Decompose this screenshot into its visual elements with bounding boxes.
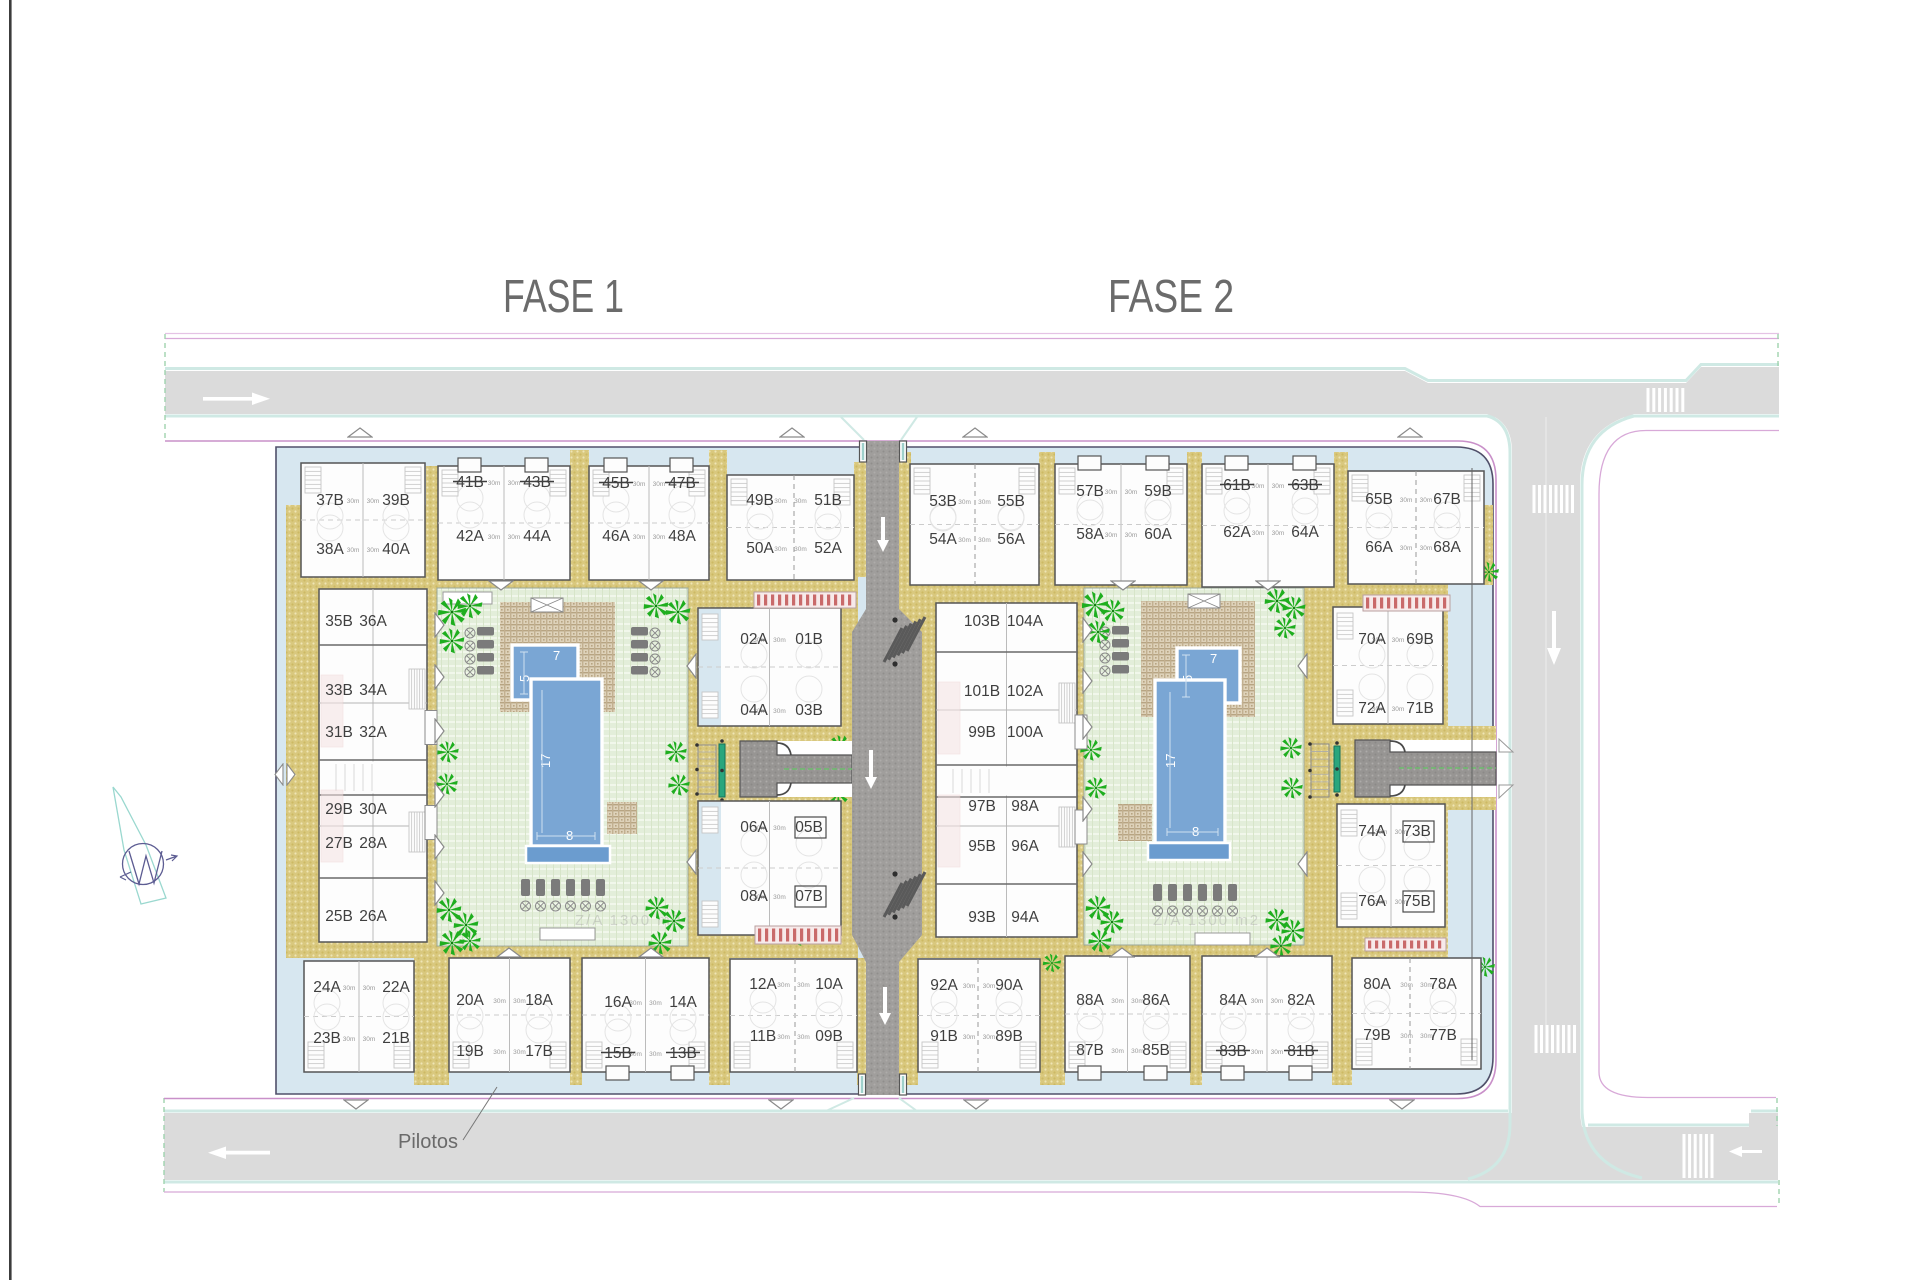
svg-text:32A: 32A: [359, 724, 387, 741]
svg-text:10A: 10A: [815, 976, 843, 993]
svg-text:17B: 17B: [525, 1043, 553, 1060]
svg-text:30m 30m: 30m 30m: [633, 534, 666, 541]
svg-text:04A: 04A: [740, 702, 768, 719]
svg-text:01B: 01B: [795, 631, 823, 648]
svg-text:15B: 15B: [604, 1045, 632, 1062]
svg-text:30m 30m: 30m 30m: [1111, 998, 1144, 1005]
svg-text:73B: 73B: [1403, 823, 1431, 840]
svg-text:52A: 52A: [814, 540, 842, 557]
svg-text:57B: 57B: [1076, 483, 1104, 500]
svg-text:30m 30m: 30m 30m: [347, 547, 380, 554]
svg-text:47B: 47B: [668, 475, 696, 492]
svg-text:30m 30m: 30m 30m: [629, 1000, 662, 1007]
svg-text:30m 30m: 30m 30m: [633, 481, 666, 488]
svg-text:25B: 25B: [325, 908, 353, 925]
svg-text:30m 30m: 30m 30m: [493, 998, 526, 1005]
svg-text:45B: 45B: [602, 475, 630, 492]
svg-text:30m 30m: 30m 30m: [958, 537, 991, 544]
svg-text:93B: 93B: [968, 909, 996, 926]
svg-text:97B: 97B: [968, 798, 996, 815]
svg-text:30m 30m: 30m 30m: [488, 534, 521, 541]
svg-text:23B: 23B: [313, 1030, 341, 1047]
svg-text:30m 30m: 30m 30m: [1251, 1049, 1284, 1056]
svg-text:92A: 92A: [930, 977, 958, 994]
svg-text:56A: 56A: [997, 531, 1025, 548]
svg-text:103B: 103B: [964, 613, 1000, 630]
svg-text:76A: 76A: [1358, 893, 1386, 910]
svg-text:95B: 95B: [968, 838, 996, 855]
svg-text:87B: 87B: [1076, 1042, 1104, 1059]
svg-text:02A: 02A: [740, 631, 768, 648]
svg-text:7: 7: [553, 648, 560, 663]
svg-text:46A: 46A: [602, 528, 630, 545]
svg-text:59B: 59B: [1144, 483, 1172, 500]
svg-text:53B: 53B: [929, 493, 957, 510]
svg-text:98A: 98A: [1011, 798, 1039, 815]
svg-text:5: 5: [1180, 675, 1195, 682]
svg-text:30m 30m: 30m 30m: [1400, 982, 1433, 989]
svg-text:67B: 67B: [1433, 491, 1461, 508]
svg-text:38A: 38A: [316, 541, 344, 558]
svg-text:64A: 64A: [1291, 524, 1319, 541]
svg-text:85B: 85B: [1142, 1042, 1170, 1059]
svg-text:30m 30m: 30m 30m: [963, 1034, 996, 1041]
svg-text:66A: 66A: [1365, 539, 1393, 556]
svg-text:77B: 77B: [1429, 1027, 1457, 1044]
svg-text:30m 30m: 30m 30m: [488, 480, 521, 487]
svg-text:78A: 78A: [1429, 976, 1457, 993]
svg-text:19B: 19B: [456, 1043, 484, 1060]
svg-text:80A: 80A: [1363, 976, 1391, 993]
svg-text:21B: 21B: [382, 1030, 410, 1047]
svg-text:75B: 75B: [1403, 893, 1431, 910]
svg-text:30m 30m: 30m 30m: [958, 499, 991, 506]
svg-text:30m 30m: 30m 30m: [963, 983, 996, 990]
svg-text:FASE 2: FASE 2: [1108, 270, 1234, 322]
svg-text:09B: 09B: [815, 1028, 843, 1045]
svg-text:42A: 42A: [456, 528, 484, 545]
svg-text:FASE 1: FASE 1: [503, 270, 624, 322]
svg-text:89B: 89B: [995, 1028, 1023, 1045]
svg-text:70A: 70A: [1358, 631, 1386, 648]
svg-text:30m 30m: 30m 30m: [1105, 489, 1138, 496]
svg-text:08A: 08A: [740, 888, 768, 905]
svg-text:84A: 84A: [1219, 992, 1247, 1009]
svg-text:12A: 12A: [749, 976, 777, 993]
svg-text:30m 30m: 30m 30m: [774, 498, 807, 505]
svg-text:17: 17: [538, 754, 553, 768]
svg-text:96A: 96A: [1011, 838, 1039, 855]
svg-text:30m 30m: 30m 30m: [1105, 532, 1138, 539]
svg-text:58A: 58A: [1076, 526, 1104, 543]
svg-text:48A: 48A: [668, 528, 696, 545]
svg-text:72A: 72A: [1358, 700, 1386, 717]
svg-text:68A: 68A: [1433, 539, 1461, 556]
svg-text:100A: 100A: [1007, 724, 1044, 741]
svg-text:30m 30m: 30m 30m: [1252, 483, 1285, 490]
svg-text:30m 30m: 30m 30m: [1400, 497, 1433, 504]
svg-text:30m 30m: 30m 30m: [1400, 545, 1433, 552]
svg-text:14A: 14A: [669, 994, 697, 1011]
svg-text:81B: 81B: [1287, 1043, 1315, 1060]
svg-text:51B: 51B: [814, 492, 842, 509]
svg-text:06A: 06A: [740, 819, 768, 836]
svg-text:40A: 40A: [382, 541, 410, 558]
svg-text:28A: 28A: [359, 835, 387, 852]
svg-text:27B: 27B: [325, 835, 353, 852]
svg-text:102A: 102A: [1007, 683, 1044, 700]
svg-text:30m 30m: 30m 30m: [347, 498, 380, 505]
svg-text:104A: 104A: [1007, 613, 1044, 630]
svg-text:37B: 37B: [316, 492, 344, 509]
svg-text:26A: 26A: [359, 908, 387, 925]
svg-text:83B: 83B: [1219, 1043, 1247, 1060]
svg-text:50A: 50A: [746, 540, 774, 557]
svg-text:07B: 07B: [795, 888, 823, 905]
svg-text:55B: 55B: [997, 493, 1025, 510]
svg-text:79B: 79B: [1363, 1027, 1391, 1044]
svg-text:30m 30m: 30m 30m: [1251, 998, 1284, 1005]
svg-text:30m 30m: 30m 30m: [777, 982, 810, 989]
svg-text:22A: 22A: [382, 979, 410, 996]
svg-text:71B: 71B: [1406, 700, 1434, 717]
svg-text:33B: 33B: [325, 682, 353, 699]
svg-text:30m 30m: 30m 30m: [1111, 1048, 1144, 1055]
svg-text:43B: 43B: [523, 474, 551, 491]
svg-text:29B: 29B: [325, 801, 353, 818]
svg-text:18A: 18A: [525, 992, 553, 1009]
svg-text:30m 30m: 30m 30m: [1400, 1033, 1433, 1040]
svg-text:11B: 11B: [750, 1028, 776, 1045]
svg-text:65B: 65B: [1365, 491, 1393, 508]
svg-text:99B: 99B: [968, 724, 996, 741]
svg-text:05B: 05B: [795, 819, 823, 836]
svg-text:20A: 20A: [456, 992, 484, 1009]
svg-text:03B: 03B: [795, 702, 823, 719]
svg-text:86A: 86A: [1142, 992, 1170, 1009]
svg-text:36A: 36A: [359, 613, 387, 630]
svg-text:74A: 74A: [1358, 823, 1386, 840]
svg-text:30m 30m: 30m 30m: [343, 1036, 376, 1043]
svg-text:Pilotos: Pilotos: [398, 1131, 458, 1153]
svg-text:54A: 54A: [929, 531, 957, 548]
svg-text:61B: 61B: [1223, 477, 1251, 494]
svg-text:62A: 62A: [1223, 524, 1251, 541]
svg-text:34A: 34A: [359, 682, 387, 699]
svg-text:49B: 49B: [746, 492, 774, 509]
svg-text:30A: 30A: [359, 801, 387, 818]
svg-text:94A: 94A: [1011, 909, 1039, 926]
svg-text:41B: 41B: [456, 474, 484, 491]
svg-text:30m 30m: 30m 30m: [493, 1049, 526, 1056]
svg-text:88A: 88A: [1076, 992, 1104, 1009]
svg-text:90A: 90A: [995, 977, 1023, 994]
svg-text:39B: 39B: [382, 492, 410, 509]
svg-text:30m 30m: 30m 30m: [774, 546, 807, 553]
svg-text:31B: 31B: [325, 724, 353, 741]
svg-text:69B: 69B: [1406, 631, 1434, 648]
svg-text:35B: 35B: [325, 613, 353, 630]
svg-text:82A: 82A: [1287, 992, 1315, 1009]
svg-text:30m 30m: 30m 30m: [777, 1034, 810, 1041]
svg-text:24A: 24A: [313, 979, 341, 996]
svg-text:44A: 44A: [523, 528, 551, 545]
svg-text:7: 7: [1210, 651, 1217, 666]
svg-text:30m 30m: 30m 30m: [343, 985, 376, 992]
svg-text:16A: 16A: [604, 994, 632, 1011]
svg-text:60A: 60A: [1144, 526, 1172, 543]
svg-text:13B: 13B: [669, 1045, 697, 1062]
svg-text:91B: 91B: [930, 1028, 958, 1045]
svg-text:101B: 101B: [964, 683, 1000, 700]
svg-text:30m 30m: 30m 30m: [1252, 530, 1285, 537]
svg-text:63B: 63B: [1291, 477, 1319, 494]
